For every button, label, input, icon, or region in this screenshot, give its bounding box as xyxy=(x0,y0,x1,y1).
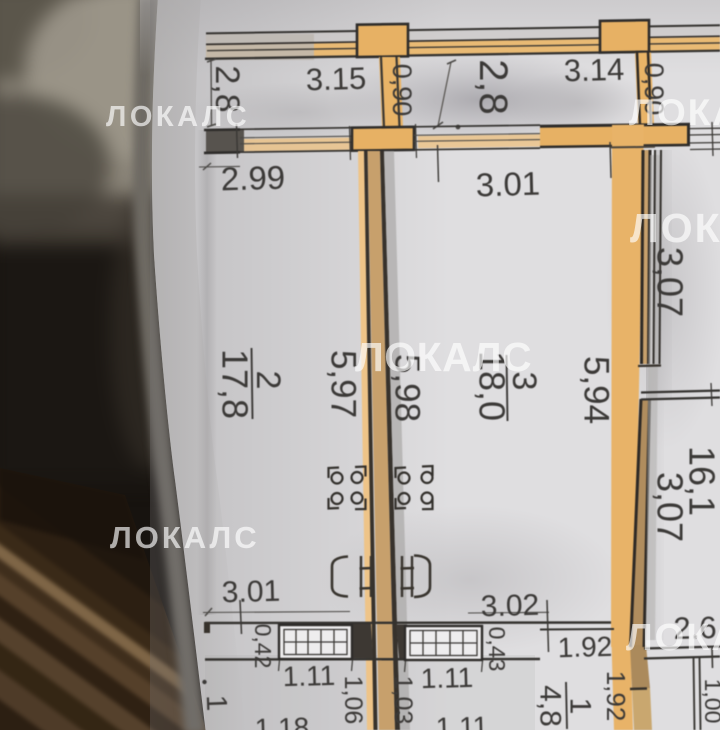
svg-text:0,90: 0,90 xyxy=(387,64,417,117)
svg-text:1: 1 xyxy=(564,698,597,715)
svg-text:ЛОКАЛС: ЛОКАЛС xyxy=(110,520,260,555)
svg-text:2: 2 xyxy=(249,371,287,390)
svg-text:3.02: 3.02 xyxy=(480,589,539,624)
svg-text:ЛОКАЛС: ЛОКАЛС xyxy=(355,334,532,380)
svg-text:1.11: 1.11 xyxy=(435,711,488,730)
svg-text:0,43: 0,43 xyxy=(484,627,510,672)
svg-text:16,1: 16,1 xyxy=(682,446,720,516)
svg-text:0,42: 0,42 xyxy=(250,624,276,669)
svg-text:1.11: 1.11 xyxy=(282,660,335,692)
svg-text:ЛОКАЛС: ЛОКАЛС xyxy=(629,92,720,133)
svg-text:1.18: 1.18 xyxy=(254,712,309,730)
svg-text:1,00: 1,00 xyxy=(700,679,720,724)
svg-text:2.99: 2.99 xyxy=(220,159,285,198)
svg-text:1,06: 1,06 xyxy=(339,676,367,725)
svg-text:1.92: 1.92 xyxy=(557,631,612,663)
svg-text:ЛОКАЛС: ЛОКАЛС xyxy=(106,101,250,133)
svg-text:3.14: 3.14 xyxy=(563,52,624,89)
svg-text:4,8: 4,8 xyxy=(534,685,567,727)
svg-text:1.11: 1.11 xyxy=(420,662,473,694)
svg-text:5,94: 5,94 xyxy=(577,356,616,424)
svg-text:ЛОКАЛС: ЛОКАЛС xyxy=(626,617,720,659)
svg-text:3.15: 3.15 xyxy=(305,61,366,98)
svg-text:1,03: 1,03 xyxy=(389,676,417,725)
svg-text:3,07: 3,07 xyxy=(650,247,691,317)
svg-text:1,92: 1,92 xyxy=(601,671,631,722)
svg-text:1: 1 xyxy=(200,694,233,711)
svg-text:2,8: 2,8 xyxy=(471,59,515,115)
svg-text:3.01: 3.01 xyxy=(221,575,280,610)
svg-text:ЛОКАЛС: ЛОКАЛС xyxy=(630,205,720,251)
svg-text:3.01: 3.01 xyxy=(475,165,540,204)
